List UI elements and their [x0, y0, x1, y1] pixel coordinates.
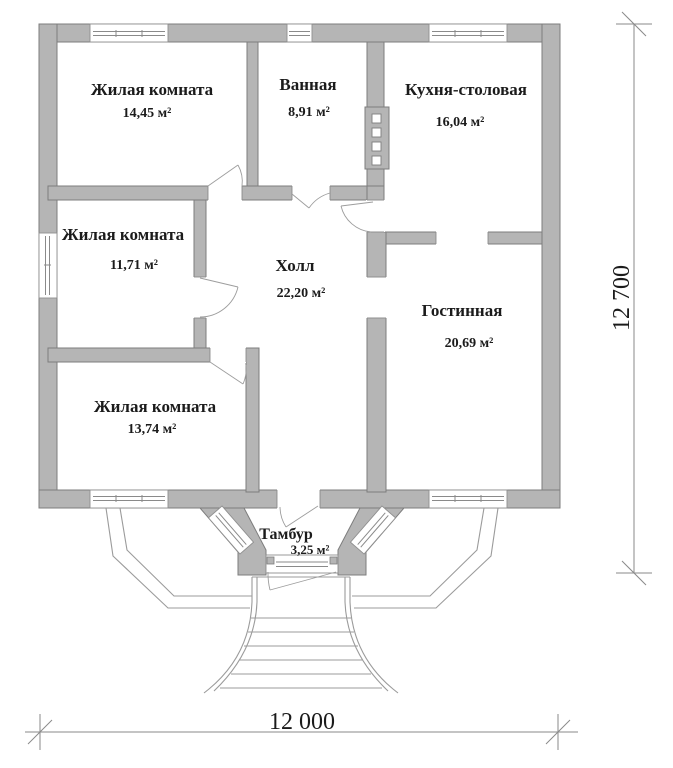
window-top-kitchen — [429, 24, 507, 42]
dimension-right: 12 700 — [609, 12, 652, 585]
wall-room1-bathroom — [247, 42, 258, 188]
door-room3 — [210, 362, 246, 384]
entry-stairs — [204, 577, 398, 693]
door-hall-tambour — [280, 506, 318, 527]
room-area-living-room-2: 11,71 м² — [110, 258, 158, 273]
door-room1 — [208, 165, 242, 186]
room-label-bathroom: Ванная — [279, 75, 336, 94]
wall-room1-bottom — [48, 186, 208, 200]
dimension-height-label: 12 700 — [609, 265, 635, 331]
room-labels: Жилая комната 14,45 м² Ванная 8,91 м² Ку… — [62, 75, 527, 557]
room-label-hall: Холл — [275, 256, 315, 275]
wall-hall-lounge-upper — [367, 232, 386, 277]
entry-door-band — [266, 555, 338, 573]
door-entry — [268, 572, 336, 590]
wall-room2-hall-upper — [194, 200, 206, 277]
room-area-tambour: 3,25 м² — [291, 542, 330, 557]
room-area-bathroom: 8,91 м² — [288, 105, 330, 120]
window-top-room1 — [90, 24, 168, 42]
floor-plan-page: 12 000 12 700 Жилая комната 14,45 м² Ван… — [0, 0, 673, 768]
wall-hall-lounge-lower — [367, 318, 386, 492]
room-area-hall: 22,20 м² — [277, 286, 326, 301]
wall-bathroom-bottom-right — [330, 186, 368, 200]
wall-room3-hall — [246, 348, 259, 492]
room-label-living-room-1: Жилая комната — [91, 80, 214, 99]
window-bottom-lounge — [429, 490, 507, 508]
room-label-living-room-3: Жилая комната — [94, 397, 217, 416]
room-label-tambour: Тамбур — [259, 526, 313, 543]
room-area-kitchen-dining: 16,04 м² — [436, 115, 485, 130]
window-top-bathroom — [287, 24, 312, 42]
window-left-room2 — [39, 233, 57, 298]
room-label-lounge: Гостинная — [422, 301, 503, 320]
wall-bathroom-bottom-left — [242, 186, 292, 200]
wall-room2-room3 — [48, 348, 210, 362]
room-label-living-room-2: Жилая комната — [62, 225, 185, 244]
window-bottom-room3 — [90, 490, 168, 508]
wall-exterior-right — [542, 24, 560, 508]
room-area-living-room-1: 14,45 м² — [123, 106, 172, 121]
dimension-width-label: 12 000 — [269, 709, 335, 735]
floor-plan-drawing: 12 000 12 700 Жилая комната 14,45 м² Ван… — [0, 0, 673, 768]
wall-room2-hall-lower — [194, 318, 206, 348]
room-area-lounge: 20,69 м² — [445, 336, 494, 351]
room-area-living-room-3: 13,74 м² — [128, 422, 177, 437]
wall-kitchen-bottom-right — [488, 232, 542, 244]
dimension-bottom: 12 000 — [25, 709, 578, 750]
room-label-kitchen-dining: Кухня-столовая — [405, 80, 527, 99]
